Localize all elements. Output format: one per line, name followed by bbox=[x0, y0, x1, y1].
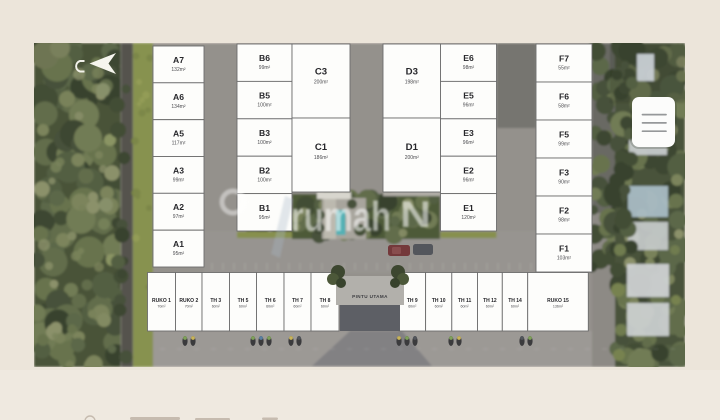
svg-text:E3: E3 bbox=[463, 128, 474, 138]
svg-text:TH 8: TH 8 bbox=[320, 298, 331, 304]
svg-text:55m²: 55m² bbox=[558, 66, 570, 72]
svg-text:60m²: 60m² bbox=[321, 305, 330, 309]
svg-text:TH 11: TH 11 bbox=[458, 298, 472, 304]
svg-text:F6: F6 bbox=[559, 92, 569, 102]
svg-text:60m²: 60m² bbox=[293, 305, 302, 309]
svg-text:RUKO 1: RUKO 1 bbox=[152, 298, 171, 304]
svg-text:60m²: 60m² bbox=[266, 305, 275, 309]
svg-text:TH 9: TH 9 bbox=[407, 298, 418, 304]
svg-text:TH 10: TH 10 bbox=[432, 298, 446, 304]
svg-text:PINTU UTAMA: PINTU UTAMA bbox=[352, 294, 388, 299]
svg-text:A3: A3 bbox=[173, 165, 184, 175]
svg-text:60m²: 60m² bbox=[486, 305, 495, 309]
svg-text:B3: B3 bbox=[259, 128, 270, 138]
svg-text:F5: F5 bbox=[559, 130, 569, 140]
svg-text:70m²: 70m² bbox=[185, 305, 194, 309]
svg-text:A7: A7 bbox=[173, 55, 184, 65]
svg-text:98m²: 98m² bbox=[558, 218, 570, 224]
svg-text:99m²: 99m² bbox=[259, 65, 271, 71]
svg-text:TH 12: TH 12 bbox=[483, 298, 497, 304]
svg-text:103m²: 103m² bbox=[557, 256, 572, 262]
svg-text:70m²: 70m² bbox=[157, 305, 166, 309]
svg-text:200m²: 200m² bbox=[314, 80, 329, 86]
svg-text:100m²: 100m² bbox=[257, 103, 272, 109]
svg-text:A5: A5 bbox=[173, 129, 184, 139]
svg-text:A2: A2 bbox=[173, 202, 184, 212]
svg-text:99m²: 99m² bbox=[558, 142, 570, 148]
svg-text:100m²: 100m² bbox=[257, 140, 272, 146]
svg-text:96m²: 96m² bbox=[463, 140, 475, 146]
svg-text:TH 14: TH 14 bbox=[508, 298, 522, 304]
svg-text:TH 5: TH 5 bbox=[238, 298, 249, 304]
svg-text:F2: F2 bbox=[559, 206, 569, 216]
svg-text:117m²: 117m² bbox=[172, 141, 186, 147]
svg-text:B5: B5 bbox=[259, 91, 270, 101]
svg-text:97m²: 97m² bbox=[173, 214, 185, 220]
svg-text:132m²: 132m² bbox=[171, 67, 186, 73]
svg-text:60m²: 60m² bbox=[460, 305, 469, 309]
svg-text:100m²: 100m² bbox=[257, 177, 272, 183]
svg-text:A6: A6 bbox=[173, 92, 184, 102]
svg-text:C1: C1 bbox=[315, 142, 328, 153]
svg-text:60m²: 60m² bbox=[511, 305, 520, 309]
svg-text:60m²: 60m² bbox=[212, 305, 221, 309]
svg-text:98m²: 98m² bbox=[463, 65, 475, 71]
svg-text:B1: B1 bbox=[259, 203, 270, 213]
svg-text:B6: B6 bbox=[259, 53, 270, 63]
svg-text:136m²: 136m² bbox=[553, 305, 564, 309]
svg-text:RUKO 2: RUKO 2 bbox=[179, 298, 198, 304]
svg-text:E1: E1 bbox=[463, 203, 474, 213]
svg-text:186m²: 186m² bbox=[314, 155, 329, 161]
svg-text:rumah: rumah bbox=[291, 193, 391, 240]
svg-text:96m²: 96m² bbox=[463, 177, 475, 183]
svg-text:58m²: 58m² bbox=[558, 104, 570, 110]
svg-text:60m²: 60m² bbox=[239, 305, 248, 309]
svg-text:D3: D3 bbox=[406, 67, 418, 78]
svg-text:99m²: 99m² bbox=[173, 177, 185, 183]
svg-text:RUKO 15: RUKO 15 bbox=[547, 298, 569, 304]
svg-text:200m²: 200m² bbox=[405, 155, 420, 161]
svg-text:90m²: 90m² bbox=[558, 180, 570, 186]
svg-text:E6: E6 bbox=[463, 53, 474, 63]
svg-text:E2: E2 bbox=[463, 165, 474, 175]
svg-text:E5: E5 bbox=[463, 91, 474, 101]
svg-text:120m²: 120m² bbox=[461, 215, 476, 221]
svg-text:B2: B2 bbox=[259, 165, 270, 175]
svg-text:N: N bbox=[400, 194, 431, 235]
svg-text:60m²: 60m² bbox=[435, 305, 444, 309]
svg-text:198m²: 198m² bbox=[405, 80, 420, 86]
svg-text:96m²: 96m² bbox=[463, 103, 475, 109]
svg-text:95m²: 95m² bbox=[173, 251, 185, 257]
svg-text:TH 6: TH 6 bbox=[265, 298, 276, 304]
svg-text:A1: A1 bbox=[173, 239, 184, 249]
svg-text:60m²: 60m² bbox=[408, 305, 417, 309]
svg-text:134m²: 134m² bbox=[171, 104, 186, 110]
svg-text:C3: C3 bbox=[315, 67, 327, 78]
svg-text:F1: F1 bbox=[559, 244, 569, 254]
svg-text:TH 7: TH 7 bbox=[292, 298, 303, 304]
svg-text:TH 3: TH 3 bbox=[210, 298, 221, 304]
svg-text:D1: D1 bbox=[406, 142, 419, 153]
svg-text:F7: F7 bbox=[559, 54, 569, 64]
svg-text:F3: F3 bbox=[559, 168, 569, 178]
svg-text:95m²: 95m² bbox=[259, 215, 271, 221]
